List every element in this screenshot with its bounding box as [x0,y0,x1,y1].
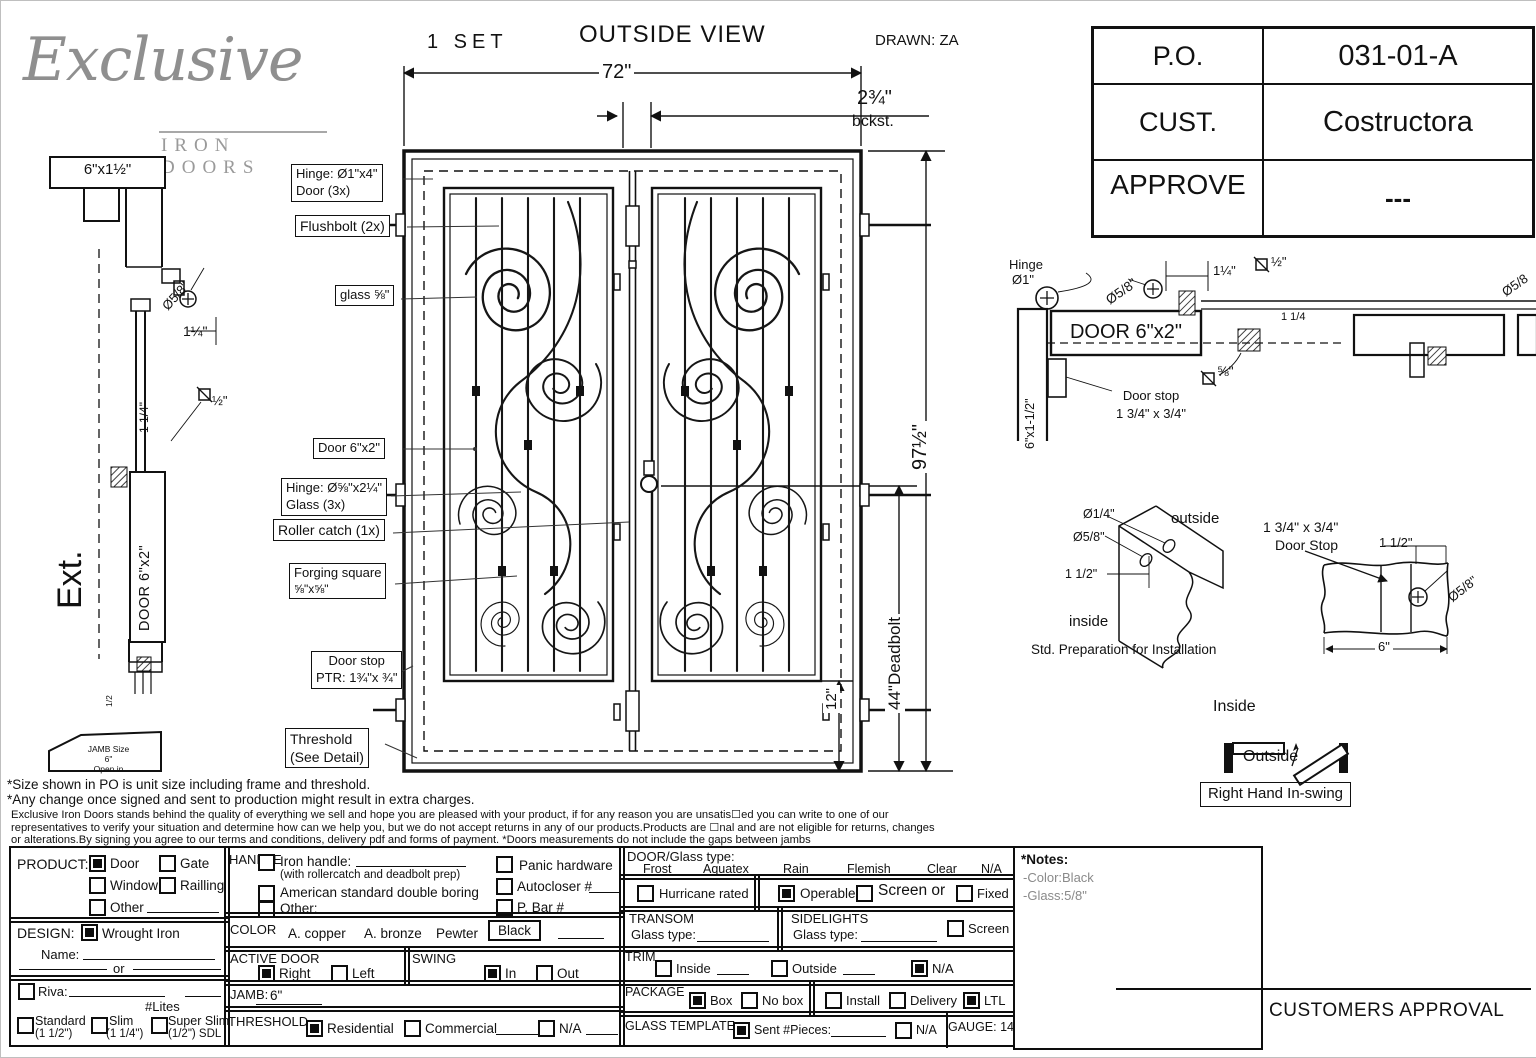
swing-handing-badge: Right Hand In-swing [1200,782,1351,807]
jamb-value[interactable]: 6" [270,988,282,1003]
threshold-label: THRESHOLD [228,1014,308,1029]
checkbox-standard-sdl[interactable] [17,1017,34,1034]
color-line[interactable] [558,936,604,939]
left-detail-head-size: 6"x1½" [49,156,166,189]
checkbox-trim-na[interactable] [911,960,928,977]
left-detail-half-square: ½" [212,393,227,408]
checkbox-glass-template-na[interactable] [895,1022,912,1039]
checkbox-trim-outside-label: Outside [792,961,837,976]
dim-height: 97½" [909,421,932,473]
checkbox-active-right-label: Right [279,966,311,981]
stop-detail-dim6: 6" [1375,639,1393,654]
or-right-rule [133,967,221,970]
checkbox-fixed[interactable] [956,885,973,902]
prep-dia14: Ø1/4" [1083,507,1115,521]
checkbox-trim-inside-label: Inside [676,961,711,976]
checkbox-super-slim-sdl[interactable] [151,1017,168,1034]
approval-signature-line[interactable] [1116,988,1531,990]
callout-forging-line2: ⅝"x⅝" [294,582,381,598]
checkbox-sent-pieces[interactable] [733,1022,750,1039]
checkbox-wrought-iron[interactable] [81,924,98,941]
checkbox-sidelights-screen[interactable] [947,920,964,937]
form-handle-cell: HANDLE Iron handle: (with rollercatch an… [224,846,625,918]
sidelights-glass-line[interactable] [861,939,937,942]
design-name-line[interactable] [83,957,215,960]
checkbox-ltl[interactable] [963,992,980,1009]
checkbox-screen-or-label: Screen or [878,882,945,900]
swing-label: SWING [412,951,456,966]
title-block-row-cust: CUST. Costructora [1094,85,1532,161]
super-slim-size-label: (1/2") SDL [168,1028,221,1040]
transom-label: TRANSOM [629,911,694,926]
checkbox-slim-label: Slim [109,1014,133,1028]
jamb-size-note: JAMB Size 6" Open in [56,745,161,774]
form-product-cell: PRODUCT: Door Gate Window Railling Other [9,846,230,923]
callout-threshold: Threshold (See Detail) [285,728,369,768]
checkbox-door[interactable] [89,855,106,872]
other-product-line[interactable] [147,910,219,913]
callout-threshold-line2: (See Detail) [290,748,364,766]
notes-box: *Notes: -Color:Black -Glass:5/8" [1013,846,1263,1050]
swing-inside-label: Inside [1213,698,1256,716]
right-detail-dim114b: 1 1/4 [1281,311,1305,323]
riva-line[interactable] [69,994,165,997]
checkbox-american-boring[interactable] [258,885,275,902]
checkbox-gate[interactable] [159,855,176,872]
stop-detail-dim112: 1 1/2" [1379,535,1413,550]
callout-hinge-glass-line2: Glass (3x) [286,497,382,514]
dim-deadbolt: 44"Deadbolt [885,614,905,713]
checkbox-iron-handle[interactable] [258,854,275,871]
checkbox-sidelights-screen-label: Screen [968,921,1009,936]
right-detail-door-stop-note: Door stop 1 3/4" x 3/4" [1081,387,1221,423]
trim-label: TRIM [625,950,656,964]
prep-inside-label: inside [1069,613,1108,630]
checkbox-autocloser[interactable] [496,878,513,895]
checkbox-window[interactable] [89,877,106,894]
product-label: PRODUCT: [17,856,89,872]
note-size: *Size shown in PO is unit size including… [7,777,370,792]
jamb-size-line3: Open in [56,765,161,775]
customers-approval-label: CUSTOMERS APPROVAL [1269,1000,1504,1022]
form-riva-cell: Riva: #Lites Standard (1 1/2") Slim (1 1… [9,975,230,1047]
glass-template-label: GLASS TEMPLATE [625,1019,735,1033]
note-para-line2: representatives to verify your situation… [11,821,935,834]
checkbox-screen-or[interactable] [856,885,873,902]
checkbox-swing-out-label: Out [557,966,579,981]
or-left-rule [19,967,107,970]
checkbox-threshold-na-label: N/A [559,1021,582,1036]
notes-box-glass: -Glass:5/8" [1023,888,1087,903]
callout-forging-line1: Forging square [294,565,381,582]
callout-door: Door 6"x2" [313,438,385,459]
checkbox-panic-hardware-label: Panic hardware [519,858,613,873]
checkbox-package-nobox-label: No box [762,993,803,1008]
prep-dim112: 1 1/2" [1065,567,1097,581]
dim-bottom: 12" [823,685,840,713]
checkbox-window-label: Window [110,878,158,893]
note-para-line3: or alterations.By signing you agree to o… [11,834,811,846]
checkbox-other-product-label: Other [110,900,144,915]
prep-caption: Std. Preparation for Installation [1031,642,1216,657]
scrollwork-right-leaf [647,198,814,671]
checkbox-riva-label: Riva: [38,984,68,999]
checkbox-hurricane[interactable] [637,885,654,902]
callout-door-stop-line2: PTR: 1¾"x ¾" [316,670,397,687]
checkbox-autocloser-label: Autocloser # [517,879,592,894]
color-option-black-selected[interactable]: Black [488,920,541,941]
cust-label: CUST. [1094,85,1264,159]
iron-handle-line[interactable] [356,864,466,867]
left-detail-door-label: DOOR 6"x2" [137,545,153,631]
checkbox-railling[interactable] [159,877,176,894]
checkbox-ltl-label: LTL [984,993,1005,1008]
trim-inside-line[interactable] [717,972,749,975]
checkbox-iron-handle-label: Iron handle: [280,854,351,869]
design-name-label: Name: [41,947,79,962]
checkbox-fixed-label: Fixed [977,886,1009,901]
checkbox-riva[interactable] [18,983,35,1000]
trim-outside-line[interactable] [843,972,875,975]
swing-outside-label: Outside [1243,748,1298,766]
checkbox-gate-label: Gate [180,856,209,871]
checkbox-residential-label: Residential [327,1021,394,1036]
standard-size-label: (1 1/2") [35,1028,72,1040]
sent-pieces-line[interactable] [831,1034,886,1037]
checkbox-residential[interactable] [306,1020,323,1037]
dim-backset: 2¾" [857,87,892,110]
door-outside-view-drawing [371,56,961,786]
right-detail-door-stop-line1: Door stop [1081,387,1221,405]
left-detail-dim114: 1¼" [183,323,207,339]
title-block: P.O. 031-01-A CUST. Costructora APPROVE … [1091,26,1535,238]
right-detail-eighth-square: ⅝" [1217,363,1234,379]
riva-line-2[interactable] [185,994,221,997]
checkbox-package-box[interactable] [689,992,706,1009]
transom-glass-type-label: Glass type: [631,927,696,942]
form-design-cell: DESIGN: Wrought Iron Name: or [9,917,230,981]
note-para-line1: Exclusive Iron Doors stands behind the q… [11,808,889,821]
stop-detail-size: 1 3/4" x 3/4" [1263,519,1338,535]
lites-label: #Lites [145,999,180,1014]
sidelights-glass-type-label: Glass type: [793,927,858,942]
checkbox-package-nobox[interactable] [741,992,758,1009]
logo-brand-text: Exclusive [23,25,302,95]
callout-door-stop: Door stop PTR: 1¾"x ¾" [311,651,402,689]
jamb-line[interactable] [256,1002,322,1005]
callout-hinge-door: Hinge: Ø1"x4" Door (3x) [291,164,383,202]
note-changes: *Any change once signed and sent to prod… [7,792,475,807]
callout-hinge-glass-line1: Hinge: Ø⅝"x2¼" [286,480,382,497]
transom-glass-line[interactable] [697,939,769,942]
form-threshold-cell: THRESHOLD Residential Commercial N/A [224,1006,625,1047]
dim-width: 72" [599,61,634,84]
view-title: OUTSIDE VIEW [579,21,766,49]
cust-value: Costructora [1264,85,1532,159]
checkbox-commercial-label: Commercial [425,1021,497,1036]
prep-dia58: Ø5/8" [1073,530,1105,544]
checkbox-package-box-label: Box [710,993,732,1008]
checkbox-railling-label: Railling [180,878,224,893]
po-value: 031-01-A [1264,29,1532,83]
checkbox-wrought-iron-label: Wrought Iron [102,926,180,941]
approve-label: APPROVE [1094,161,1264,235]
form-glass-template-cell: GLASS TEMPLATE Sent #Pieces: N/A GAUGE: … [619,1011,1015,1047]
right-detail-dim114: 1¼" [1213,263,1236,278]
callout-roller-catch: Roller catch (1x) [273,519,385,541]
order-form: PRODUCT: Door Gate Window Railling Other… [9,846,1011,1044]
autocloser-line[interactable] [589,890,619,893]
gauge-cell: GAUGE: 14 [946,1013,1011,1048]
right-detail-door-stop-line2: 1 3/4" x 3/4" [1081,405,1221,423]
callout-threshold-line1: Threshold [290,730,364,748]
checkbox-operable-label: Operable [800,886,856,901]
title-block-row-approve: APPROVE --- [1094,161,1532,235]
dim-backset-sub: bckst. [852,113,894,131]
color-option-copper[interactable]: A. copper [288,926,346,941]
checkbox-threshold-na[interactable] [538,1020,555,1037]
scrollwork-left-leaf [451,198,618,671]
checkbox-sent-pieces-label: Sent #Pieces: [754,1023,831,1037]
checkbox-super-slim-label: Super Slim [168,1014,229,1028]
iron-handle-sub-label: (with rollercatch and deadbolt prep) [280,869,460,881]
right-detail-jamb-label: 6"x1-1/2" [1023,398,1037,449]
checkbox-trim-outside[interactable] [771,960,788,977]
right-detail-hinge-dia: Ø1" [1012,272,1034,287]
notes-box-color: -Color:Black [1023,870,1094,885]
checkbox-operable[interactable] [778,885,795,902]
checkbox-other-product[interactable] [89,899,106,916]
prep-outside-label: outside [1171,510,1219,527]
callout-hinge-glass: Hinge: Ø⅝"x2¼" Glass (3x) [281,478,387,516]
package-label: PACKAGE [625,985,685,999]
design-label: DESIGN: [17,925,75,941]
po-label: P.O. [1094,29,1264,83]
active-door-label: ACTIVE DOOR [230,951,320,966]
color-option-pewter[interactable]: Pewter [436,926,478,941]
callout-hinge-door-line2: Door (3x) [296,183,378,200]
color-option-bronze[interactable]: A. bronze [364,926,422,941]
checkbox-hurricane-label: Hurricane rated [659,886,749,901]
exterior-side-label: Ext. [51,550,90,609]
jamb-label: JAMB: [230,987,268,1002]
checkbox-trim-inside[interactable] [655,960,672,977]
checkbox-install-label: Install [846,993,880,1008]
approve-value: --- [1264,161,1532,235]
drawing-sheet: Exclusive IRON DOORS 1 SET OUTSIDE VIEW … [0,0,1536,1058]
checkbox-door-label: Door [110,856,139,871]
left-detail-dim114-vertical: 1 1/4" [137,402,151,433]
threshold-na-line[interactable] [586,1032,618,1035]
stop-detail-name: Door Stop [1275,537,1338,553]
notes-box-title: *Notes: [1021,852,1068,867]
checkbox-swing-in-label: In [505,966,516,981]
checkbox-install[interactable] [825,992,842,1009]
checkbox-delivery[interactable] [889,992,906,1009]
checkbox-standard-label: Standard [35,1014,86,1028]
right-detail-half-square: ½" [1271,254,1286,269]
callout-door-stop-line1: Door stop [316,653,397,670]
title-block-row-po: P.O. 031-01-A [1094,29,1532,85]
left-detail-half-small: 1/2 [104,695,114,707]
checkbox-active-left-label: Left [352,966,375,981]
logo-rule [159,131,327,133]
checkbox-glass-template-na-label: N/A [916,1023,937,1037]
set-count: 1 SET [427,31,508,54]
checkbox-panic-hardware[interactable] [496,856,513,873]
callout-flushbolt: Flushbolt (2x) [295,215,390,237]
logo: Exclusive IRON DOORS [19,25,329,145]
drawn-by: DRAWN: ZA [875,32,959,49]
right-detail-hinge-label: Hinge [1009,257,1043,272]
color-label: COLOR [230,922,276,937]
sidelights-label: SIDELIGHTS [791,911,868,926]
checkbox-commercial[interactable] [404,1020,421,1037]
callout-hinge-door-line1: Hinge: Ø1"x4" [296,166,378,183]
callout-glass: glass ⅝" [335,285,394,306]
checkbox-trim-na-label: N/A [932,961,954,976]
checkbox-delivery-label: Delivery [910,993,957,1008]
slim-size-label: (1 1/4") [106,1028,143,1040]
right-detail-door-label: DOOR 6"x2" [1051,321,1201,344]
checkbox-american-boring-label: American standard double boring [280,885,479,900]
design-or-label: or [113,961,125,976]
left-jamb-section-drawing [41,149,241,789]
callout-forging-square: Forging square ⅝"x⅝" [289,563,386,599]
commercial-line[interactable] [496,1032,542,1035]
